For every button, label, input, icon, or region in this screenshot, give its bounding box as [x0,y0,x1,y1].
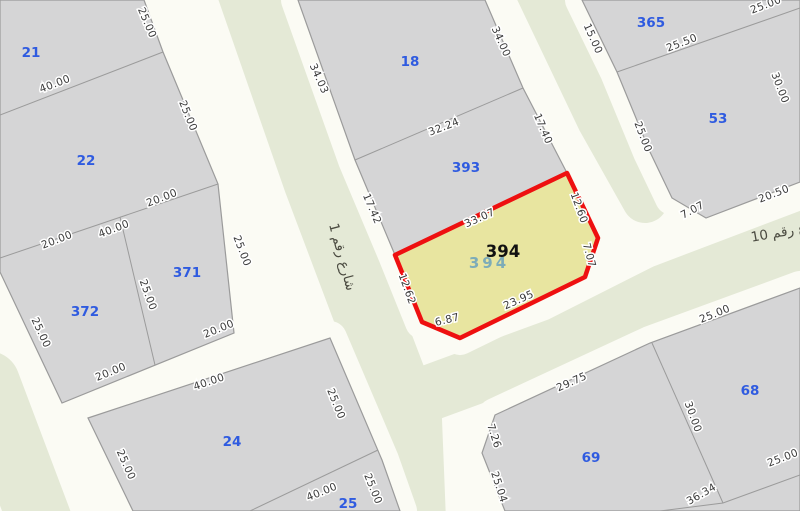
parcel-number-25: 25 [339,496,358,511]
parcel-number-53: 53 [709,111,728,127]
cadastral-map[interactable]: 40.0025.0025.0020.0040.0020.0025.0025.00… [0,0,800,511]
parcel-number-365: 365 [637,15,665,31]
parcel-number-393: 393 [452,160,480,176]
map-viewport[interactable]: 40.0025.0025.0020.0040.0020.0025.0025.00… [0,0,800,511]
parcel-number-24: 24 [223,434,242,450]
parcel-number-21: 21 [22,45,41,61]
parcel-number-69: 69 [582,450,601,466]
parcel-number-22: 22 [77,153,96,169]
parcel-394-label: 394 [486,242,520,261]
parcel-number-372: 372 [71,304,99,320]
parcel-number-68: 68 [741,383,760,399]
parcel-number-371: 371 [173,265,201,281]
parcel-number-18: 18 [401,54,420,70]
